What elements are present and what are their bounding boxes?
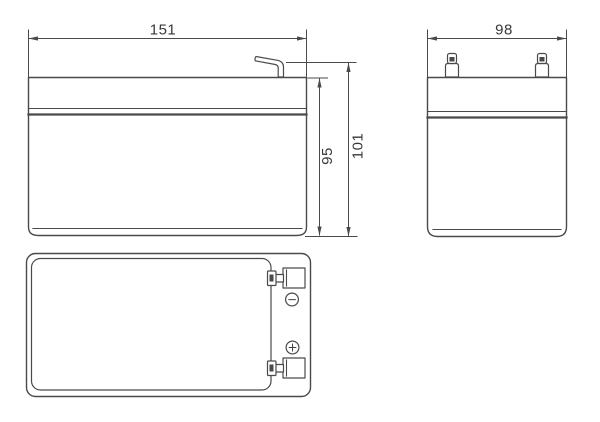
front-width-label: 151 bbox=[150, 22, 177, 39]
arrow-down-icon bbox=[346, 227, 350, 237]
dimension-body-height: 95 bbox=[308, 78, 337, 236]
battery-dimension-drawing: 151 95 101 bbox=[0, 0, 600, 422]
positive-polarity-mark: + bbox=[286, 341, 299, 355]
side-view bbox=[428, 54, 567, 237]
arrow-left-icon bbox=[428, 36, 438, 40]
terminal-blade-hole bbox=[450, 57, 455, 62]
negative-symbol: − bbox=[287, 293, 297, 307]
drawing-svg: 151 95 101 bbox=[0, 0, 600, 422]
front-view bbox=[29, 57, 307, 236]
top-view: − + bbox=[27, 254, 311, 397]
body-height-label: 95 bbox=[319, 147, 336, 165]
top-view-cover bbox=[32, 259, 272, 391]
arrow-down-icon bbox=[317, 227, 321, 237]
arrow-up-icon bbox=[346, 63, 350, 73]
terminal-neck bbox=[276, 365, 284, 373]
arrow-left-icon bbox=[29, 36, 39, 40]
terminal-base bbox=[536, 64, 549, 78]
terminal-tab-icon bbox=[255, 57, 284, 78]
top-view-terminal-positive bbox=[268, 358, 306, 378]
side-view-terminal-left bbox=[446, 54, 459, 78]
top-view-terminal-negative bbox=[268, 268, 306, 288]
terminal-blade-slot bbox=[270, 365, 274, 372]
front-view-outline bbox=[29, 78, 307, 236]
dimension-front-width: 151 bbox=[29, 22, 307, 78]
arrow-right-icon bbox=[557, 36, 567, 40]
positive-symbol: + bbox=[287, 341, 297, 355]
negative-polarity-mark: − bbox=[286, 293, 299, 307]
arrow-up-icon bbox=[317, 78, 321, 88]
terminal-neck bbox=[276, 275, 284, 283]
side-view-terminal-right bbox=[536, 54, 549, 78]
side-view-outline bbox=[428, 78, 567, 237]
depth-label: 98 bbox=[495, 22, 513, 39]
total-height-label: 101 bbox=[350, 133, 367, 160]
terminal-blade-hole bbox=[540, 57, 545, 62]
terminal-base bbox=[446, 64, 459, 78]
arrow-right-icon bbox=[297, 36, 307, 40]
terminal-blade-slot bbox=[270, 275, 274, 282]
